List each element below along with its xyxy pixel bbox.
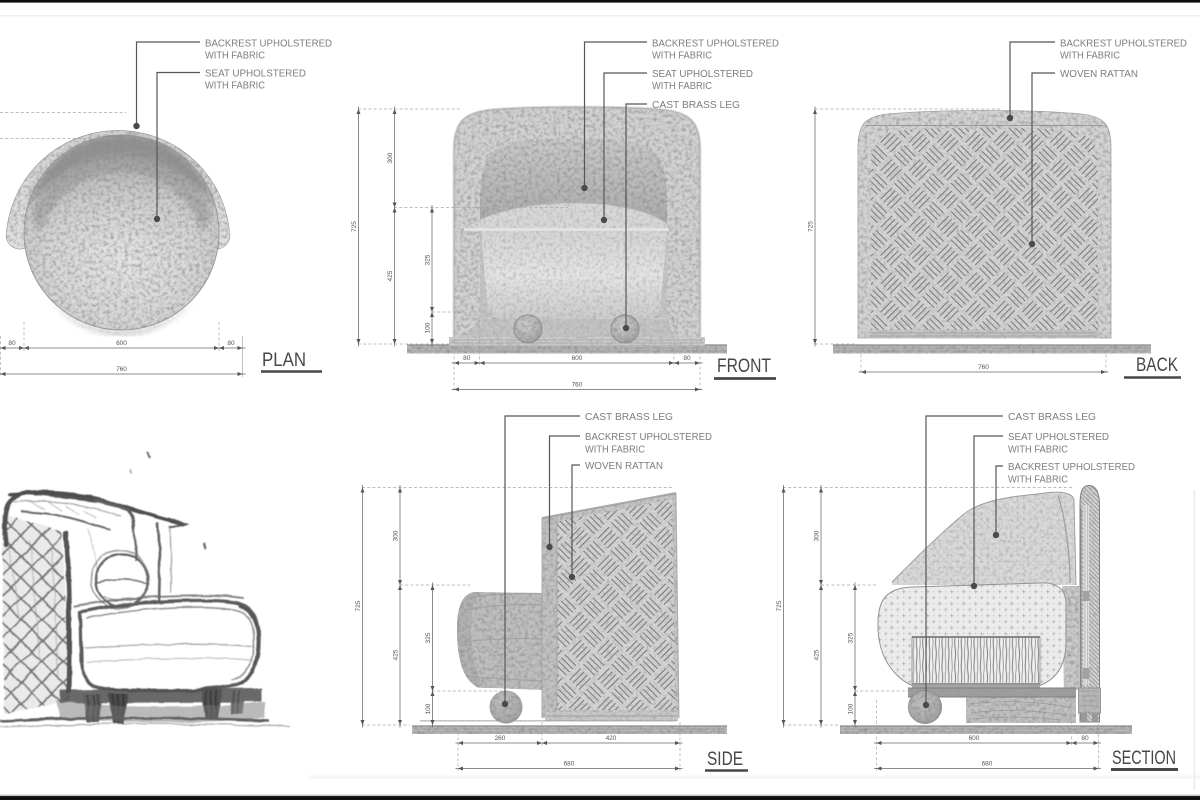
svg-text:WITH FABRIC: WITH FABRIC bbox=[1008, 445, 1068, 456]
svg-text:SEAT UPHOLSTERED: SEAT UPHOLSTERED bbox=[652, 69, 753, 80]
svg-text:WITH FABRIC: WITH FABRIC bbox=[585, 445, 645, 456]
svg-text:260: 260 bbox=[495, 735, 506, 742]
svg-text:80: 80 bbox=[1081, 735, 1089, 742]
svg-text:CAST BRASS LEG: CAST BRASS LEG bbox=[1008, 412, 1096, 423]
svg-text:100: 100 bbox=[425, 703, 432, 714]
svg-text:BACKREST UPHOLSTERED: BACKREST UPHOLSTERED bbox=[1008, 462, 1135, 473]
svg-text:BACKREST UPHOLSTERED: BACKREST UPHOLSTERED bbox=[205, 39, 332, 50]
svg-text:WITH FABRIC: WITH FABRIC bbox=[652, 51, 712, 62]
svg-text:325: 325 bbox=[848, 632, 855, 643]
svg-text:FRONT: FRONT bbox=[717, 356, 771, 377]
svg-text:PLAN: PLAN bbox=[262, 350, 306, 371]
svg-text:325: 325 bbox=[425, 632, 432, 643]
svg-text:680: 680 bbox=[982, 761, 993, 768]
svg-text:760: 760 bbox=[572, 381, 583, 388]
svg-text:425: 425 bbox=[387, 270, 394, 281]
svg-text:80: 80 bbox=[463, 355, 471, 362]
svg-text:600: 600 bbox=[969, 735, 980, 742]
svg-text:WITH FABRIC: WITH FABRIC bbox=[205, 81, 265, 92]
svg-text:300: 300 bbox=[387, 152, 394, 163]
svg-text:600: 600 bbox=[572, 355, 583, 362]
svg-text:300: 300 bbox=[393, 530, 400, 541]
svg-text:WITH FABRIC: WITH FABRIC bbox=[652, 81, 712, 92]
svg-text:725: 725 bbox=[776, 600, 783, 611]
svg-text:80: 80 bbox=[227, 340, 235, 347]
svg-text:SECTION: SECTION bbox=[1112, 748, 1176, 769]
svg-text:425: 425 bbox=[393, 649, 400, 660]
svg-text:760: 760 bbox=[978, 364, 989, 371]
svg-text:80: 80 bbox=[683, 355, 691, 362]
svg-text:BACKREST UPHOLSTERED: BACKREST UPHOLSTERED bbox=[652, 39, 779, 50]
svg-text:BACK: BACK bbox=[1136, 355, 1178, 376]
svg-text:BACKREST UPHOLSTERED: BACKREST UPHOLSTERED bbox=[1060, 39, 1187, 50]
svg-text:725: 725 bbox=[355, 600, 362, 611]
svg-text:100: 100 bbox=[425, 322, 432, 333]
svg-text:WOVEN RATTAN: WOVEN RATTAN bbox=[585, 461, 663, 472]
svg-text:CAST BRASS LEG: CAST BRASS LEG bbox=[652, 100, 740, 111]
svg-text:SEAT UPHOLSTERED: SEAT UPHOLSTERED bbox=[205, 69, 306, 80]
svg-text:WITH FABRIC: WITH FABRIC bbox=[1008, 475, 1068, 486]
svg-text:WOVEN RATTAN: WOVEN RATTAN bbox=[1060, 69, 1138, 80]
svg-text:725: 725 bbox=[808, 221, 815, 232]
svg-text:325: 325 bbox=[425, 254, 432, 265]
svg-text:760: 760 bbox=[116, 366, 127, 373]
svg-text:680: 680 bbox=[564, 761, 575, 768]
svg-text:725: 725 bbox=[351, 221, 358, 232]
svg-text:420: 420 bbox=[606, 735, 617, 742]
svg-text:425: 425 bbox=[814, 649, 821, 660]
svg-text:600: 600 bbox=[116, 340, 127, 347]
svg-text:WITH FABRIC: WITH FABRIC bbox=[205, 51, 265, 62]
svg-text:SEAT UPHOLSTERED: SEAT UPHOLSTERED bbox=[1008, 432, 1109, 443]
svg-text:300: 300 bbox=[814, 530, 821, 541]
svg-text:100: 100 bbox=[848, 703, 855, 714]
svg-text:80: 80 bbox=[8, 340, 16, 347]
svg-text:CAST BRASS LEG: CAST BRASS LEG bbox=[585, 412, 673, 423]
svg-text:BACKREST UPHOLSTERED: BACKREST UPHOLSTERED bbox=[585, 432, 712, 443]
svg-text:SIDE: SIDE bbox=[707, 749, 743, 770]
svg-text:WITH FABRIC: WITH FABRIC bbox=[1060, 51, 1120, 62]
